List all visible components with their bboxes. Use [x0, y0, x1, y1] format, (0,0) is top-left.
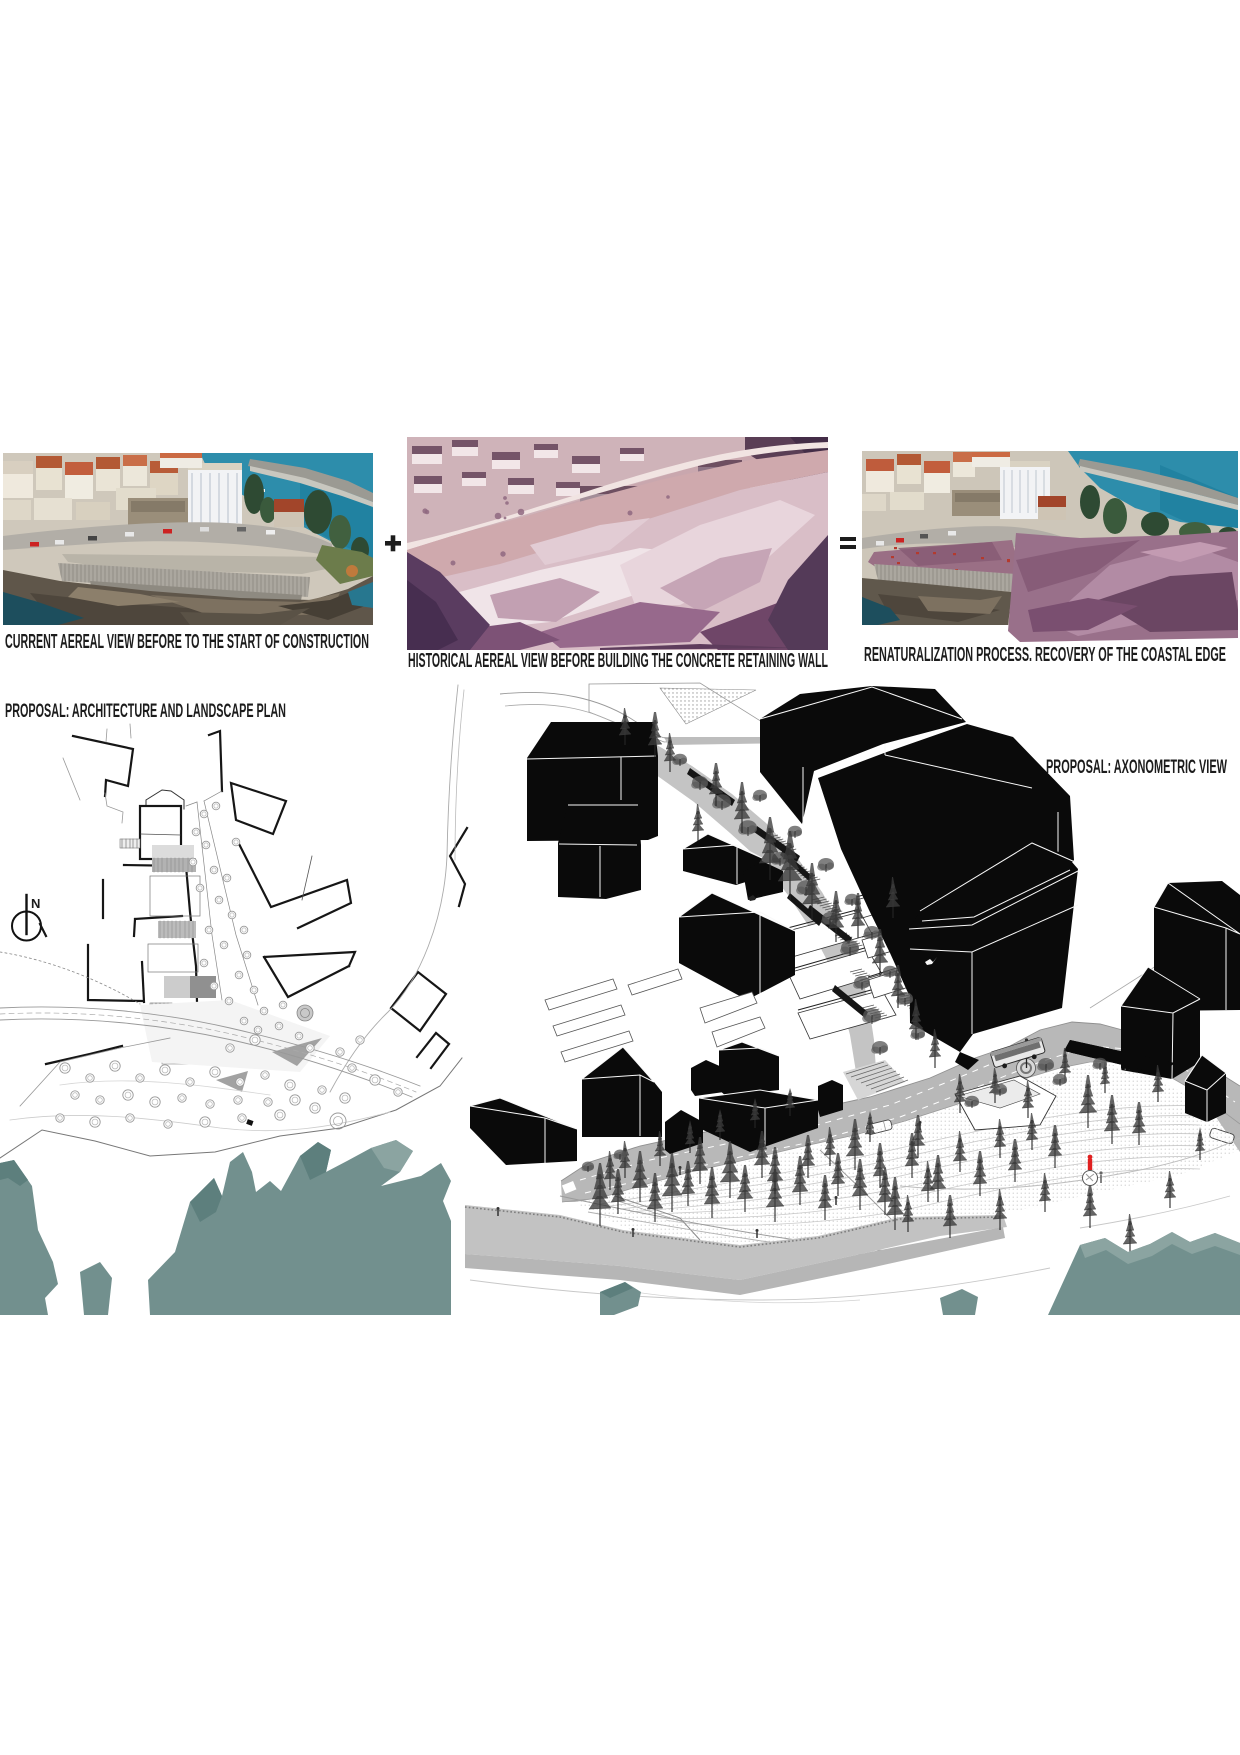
- svg-text:CURRENT AEREAL VIEW BEFORE TO: CURRENT AEREAL VIEW BEFORE TO THE START …: [5, 631, 369, 653]
- svg-text:HISTORICAL AEREAL VIEW BEFORE: HISTORICAL AEREAL VIEW BEFORE BUILDING T…: [408, 650, 828, 672]
- svg-text:N: N: [31, 896, 40, 911]
- svg-text:PROPOSAL: ARCHITECTURE AND LAN: PROPOSAL: ARCHITECTURE AND LANDSCAPE PLA…: [5, 700, 286, 722]
- svg-text:PROPOSAL: AXONOMETRIC VIEW: PROPOSAL: AXONOMETRIC VIEW: [1046, 756, 1227, 778]
- svg-text:RENATURALIZATION PROCESS. RECO: RENATURALIZATION PROCESS. RECOVERY OF TH…: [864, 644, 1226, 666]
